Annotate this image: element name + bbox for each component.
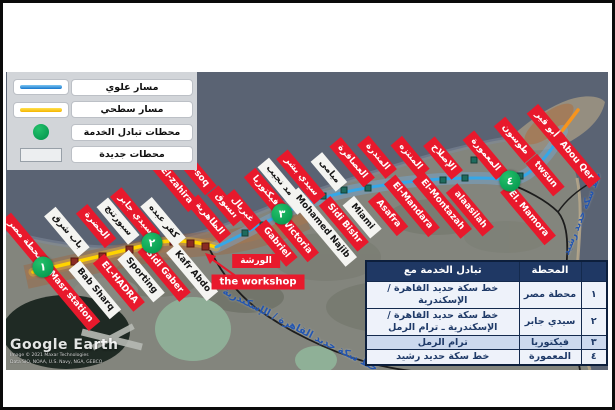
row-station: سيدي جابر: [519, 308, 581, 335]
workshop-label-ar: الورشة: [232, 254, 280, 268]
interchange-marker: ١: [33, 257, 54, 278]
legend-row: مسار سطحي: [11, 100, 193, 120]
interchange-marker: ٤: [500, 171, 521, 192]
surface-line-icon: [11, 102, 71, 118]
legend-label: محطات جديدة: [71, 146, 193, 163]
workshop-label-en: the workshop: [212, 275, 305, 290]
row-interchange: خط سكة حديد رشيد: [366, 350, 519, 365]
row-station: المعمورة: [519, 350, 581, 365]
table-header-number: [581, 261, 607, 282]
legend-label: مسار علوي: [71, 79, 193, 96]
table-row: ٤المعمورةخط سكة حديد رشيد: [366, 350, 607, 365]
table-row: ٢سيدي جابرخط سكة حديد القاهرة / الإسكندر…: [366, 308, 607, 335]
interchange-table: المحطة تبادل الخدمة مع ١محطة مصرخط سكة ح…: [365, 260, 608, 366]
green-lake: [155, 297, 231, 361]
legend-row: مسار علوي: [11, 77, 193, 97]
watermark: Google Earth Image © 2021 Maxar Technolo…: [10, 337, 119, 367]
legend-row: محطات جديدة: [11, 145, 193, 165]
row-station: فيكتوريا: [519, 335, 581, 350]
legend-row: محطات تبادل الخدمة: [11, 122, 193, 142]
table-row: ٣فيكتورياترام الرمل: [366, 335, 607, 350]
google-earth-logo: Google Earth: [10, 337, 119, 353]
legend: مسار علويمسار سطحيمحطات تبادل الخدمةمحطا…: [7, 72, 197, 170]
table-header-station: المحطة: [519, 261, 581, 282]
row-number: ١: [581, 282, 607, 309]
row-interchange: خط سكة حديد القاهرة / الإسكندرية ـ ترام …: [366, 308, 519, 335]
row-number: ٤: [581, 350, 607, 365]
legend-label: مسار سطحي: [71, 101, 193, 118]
new-station-box-icon: [11, 148, 71, 162]
legend-label: محطات تبادل الخدمة: [71, 124, 193, 141]
imagery-attribution: Image © 2021 Maxar Technologies Data SIO…: [10, 353, 119, 367]
slide-page: محطة مصرMasr stationباب شرقBab Sharqالحض…: [0, 0, 615, 410]
interchange-marker: ٢: [142, 233, 163, 254]
table-row: ١محطة مصرخط سكة حديد القاهرة / الإسكندري…: [366, 282, 607, 309]
table-header-interchange: تبادل الخدمة مع: [366, 261, 519, 282]
row-station: محطة مصر: [519, 282, 581, 309]
satellite-map[interactable]: محطة مصرMasr stationباب شرقBab Sharqالحض…: [6, 72, 608, 370]
interchange-marker: ٣: [272, 204, 293, 225]
row-number: ٣: [581, 335, 607, 350]
row-interchange: خط سكة حديد القاهرة / الإسكندرية: [366, 282, 519, 309]
elevated-line-icon: [11, 79, 71, 95]
interchange-circle-icon: [11, 124, 71, 140]
row-interchange: ترام الرمل: [366, 335, 519, 350]
row-number: ٢: [581, 308, 607, 335]
interchange-table-body: ١محطة مصرخط سكة حديد القاهرة / الإسكندري…: [366, 282, 607, 366]
